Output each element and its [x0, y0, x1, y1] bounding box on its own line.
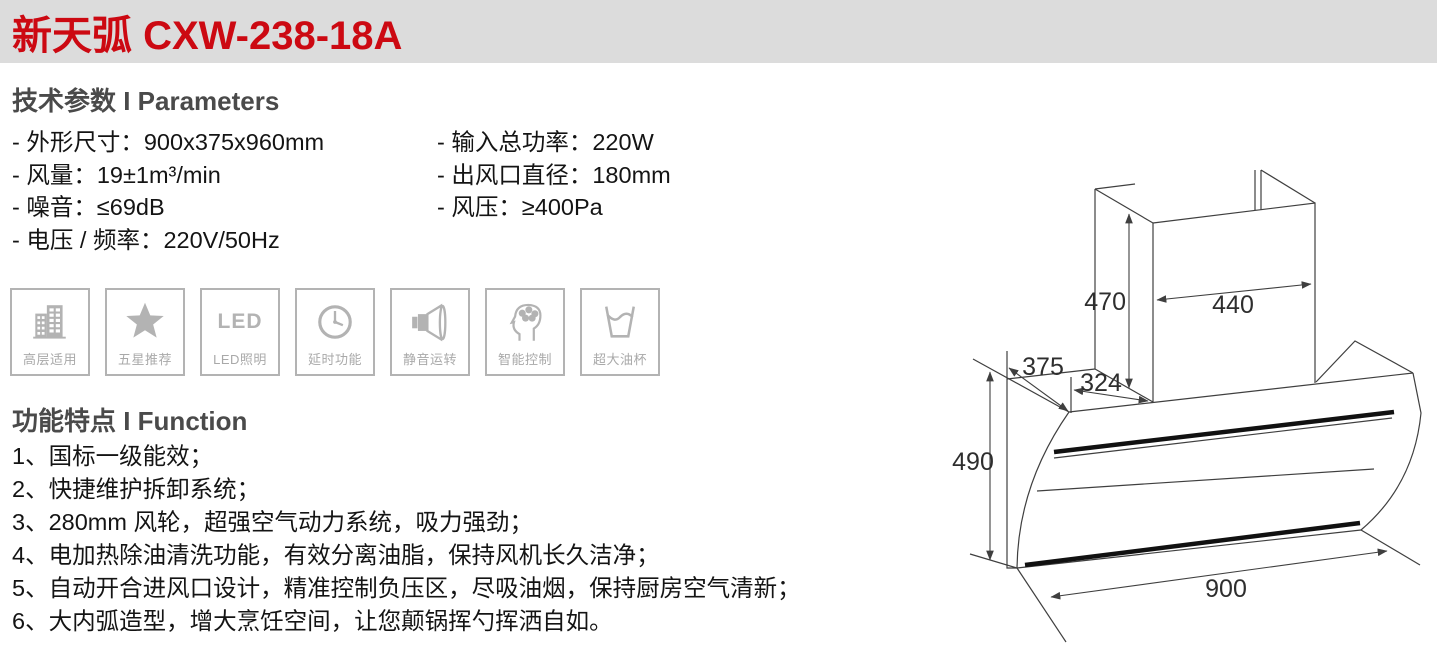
spec-item: - 风压：≥400Pa: [437, 191, 671, 224]
badge-oil-cup: 超大油杯: [580, 288, 660, 376]
speaker-icon: [408, 295, 452, 349]
badge-led: LED LED照明: [200, 288, 280, 376]
dim-body-height: 490: [952, 448, 994, 476]
function-item: 4、电加热除油清洗功能，有效分离油脂，保持风机长久洁净；: [12, 539, 801, 572]
product-spec-sheet: 新天弧 CXW-238-18A 技术参数 I Parameters - 外形尺寸…: [0, 0, 1437, 658]
spec-list-right: - 输入总功率：220W - 出风口直径：180mm - 风压：≥400Pa: [437, 126, 671, 224]
product-dimension-drawing: 470 440 375 324 490 900: [940, 140, 1437, 658]
function-item: 2、快捷维护拆卸系统；: [12, 473, 801, 506]
smart-brain-icon: [503, 295, 547, 349]
dim-body-width: 900: [1205, 575, 1247, 603]
badge-delay: 延时功能: [295, 288, 375, 376]
badge-label: LED照明: [213, 349, 267, 368]
dim-chimney-width: 440: [1212, 291, 1254, 319]
feature-badges: 高层适用 五星推荐 LED LED照明: [10, 288, 660, 376]
spec-item: - 风量：19±1m³/min: [12, 159, 324, 192]
five-star-icon: [122, 295, 168, 349]
function-item: 1、国标一级能效；: [12, 440, 801, 473]
spec-item: - 外形尺寸：900x375x960mm: [12, 126, 324, 159]
spec-item: - 输入总功率：220W: [437, 126, 671, 159]
function-item: 6、大内弧造型，增大烹饪空间，让您颠锅挥勺挥洒自如。: [12, 605, 801, 638]
function-list: 1、国标一级能效； 2、快捷维护拆卸系统； 3、280mm 风轮，超强空气动力系…: [12, 440, 801, 638]
dim-chimney-height: 470: [1084, 288, 1126, 316]
spec-item: - 电压 / 频率：220V/50Hz: [12, 224, 324, 257]
badge-label: 智能控制: [498, 349, 552, 368]
badge-label: 高层适用: [23, 349, 77, 368]
badge-label: 静音运转: [403, 349, 457, 368]
spec-item: - 噪音：≤69dB: [12, 191, 324, 224]
badge-smart: 智能控制: [485, 288, 565, 376]
function-item: 3、280mm 风轮，超强空气动力系统，吸力强劲；: [12, 506, 801, 539]
page-title: 新天弧 CXW-238-18A: [12, 3, 402, 61]
spec-list-left: - 外形尺寸：900x375x960mm - 风量：19±1m³/min - 噪…: [12, 126, 324, 256]
clock-icon: [314, 295, 356, 349]
badge-label: 五星推荐: [118, 349, 172, 368]
spec-item: - 出风口直径：180mm: [437, 159, 671, 192]
badge-label: 延时功能: [308, 349, 362, 368]
badge-five-star: 五星推荐: [105, 288, 185, 376]
dim-top-depth: 375: [1022, 353, 1064, 381]
dim-top-inner-depth: 324: [1080, 369, 1122, 397]
badge-silent: 静音运转: [390, 288, 470, 376]
function-item: 5、自动开合进风口设计，精准控制负压区，尽吸油烟，保持厨房空气清新；: [12, 572, 801, 605]
badge-label: 超大油杯: [593, 349, 647, 368]
badge-highrise: 高层适用: [10, 288, 90, 376]
led-icon: LED: [218, 295, 263, 349]
dimension-lines: [990, 214, 1387, 597]
function-heading: 功能特点 I Function: [12, 401, 247, 438]
oil-cup-icon: [598, 295, 642, 349]
hood-outline: [970, 170, 1421, 642]
header-bar: 新天弧 CXW-238-18A: [0, 0, 1437, 63]
parameters-heading: 技术参数 I Parameters: [12, 81, 279, 118]
highrise-building-icon: [29, 295, 71, 349]
